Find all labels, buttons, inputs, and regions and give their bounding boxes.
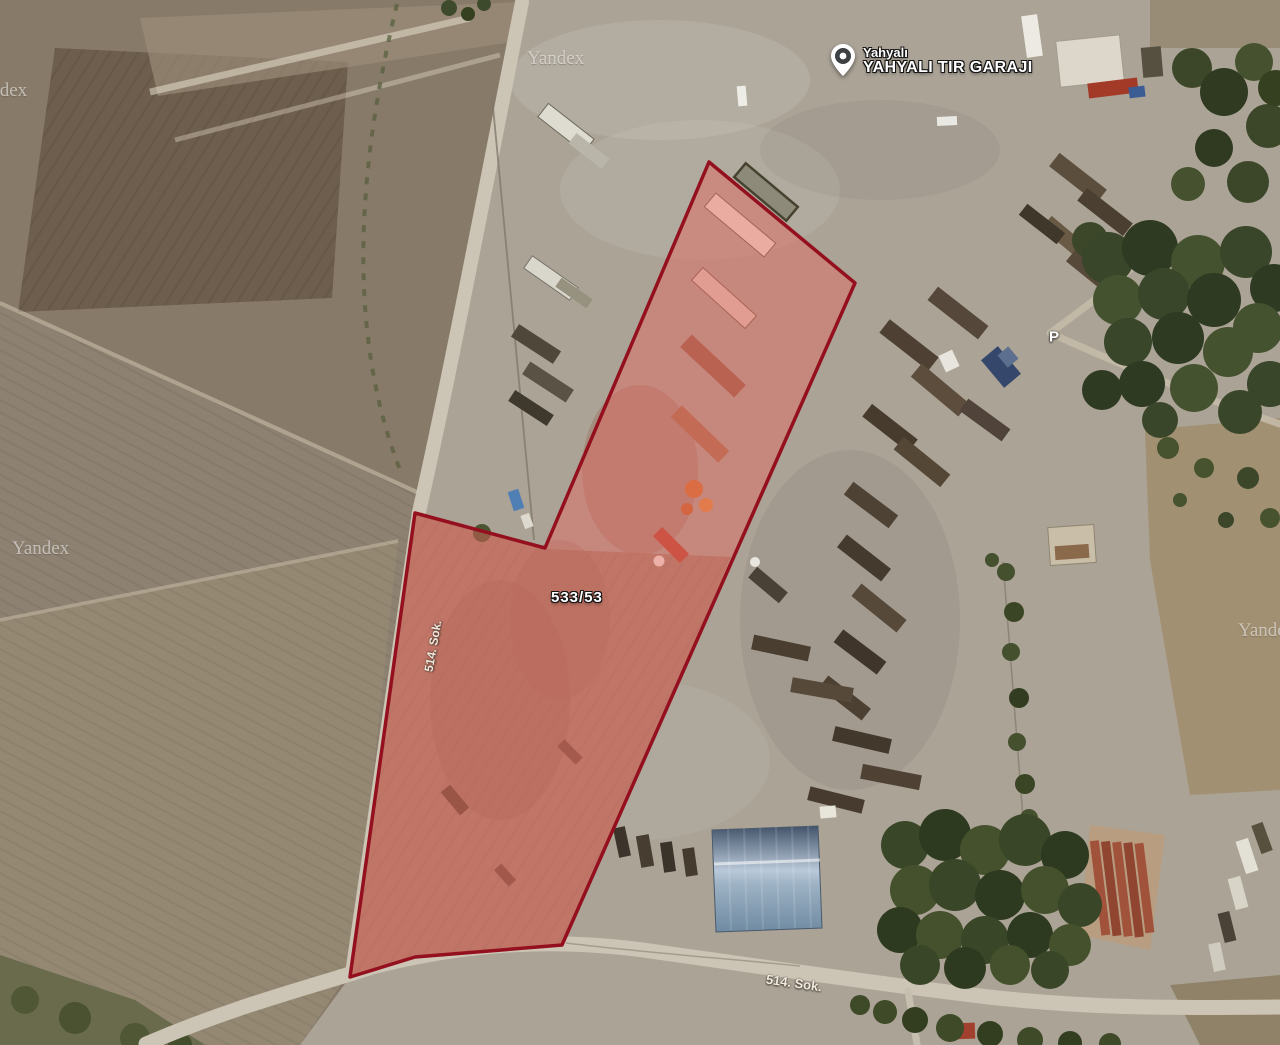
- satellite-map-canvas[interactable]: Yahyalı YAHYALI TIR GARAJI 533/53 514. S…: [0, 0, 1280, 1045]
- place-callout: Yahyalı YAHYALI TIR GARAJI: [826, 42, 1033, 82]
- satellite-imagery: [0, 0, 1280, 1045]
- place-title: YAHYALI TIR GARAJI: [863, 60, 1033, 77]
- place-marker-icon[interactable]: [826, 42, 860, 82]
- place-locality: Yahyalı: [863, 46, 1033, 60]
